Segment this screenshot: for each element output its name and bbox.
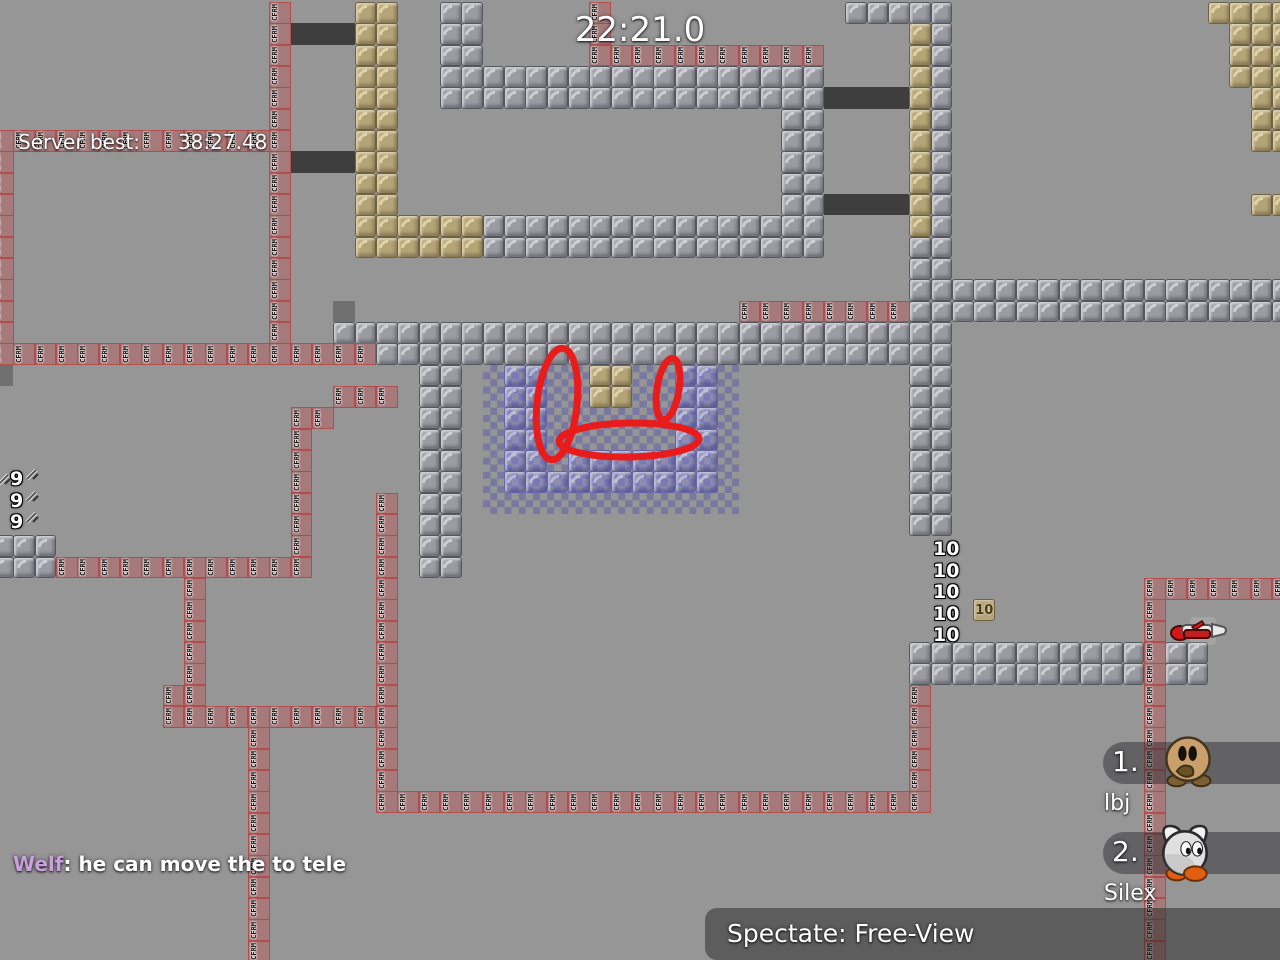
spectate-bar: Spectate: Free-View xyxy=(705,908,1280,960)
grenade-launcher-pickup xyxy=(1168,617,1232,647)
game-viewport: CFRMCFRMCFRMCFRMCFRMCFRMCFRMCFRMCFRMCFRM… xyxy=(0,0,1280,960)
scoreboard-name-1: lbj xyxy=(1104,791,1130,816)
chat-text: he can move the to tele xyxy=(78,852,346,876)
chat-separator: : xyxy=(63,852,78,876)
server-best-label: Server best: xyxy=(18,130,140,154)
server-best-value: 38:27.48 xyxy=(178,130,267,154)
scoreboard-name-2: Silex xyxy=(1104,881,1156,906)
hud-layer: 22:21.0 Server best:38:27.48 Welf: he ca… xyxy=(0,0,1280,960)
tee-avatar-lbj xyxy=(1158,731,1218,791)
server-best: Server best:38:27.48 xyxy=(18,130,267,154)
scoreboard-rank-2: 2. xyxy=(1112,835,1139,868)
race-timer: 22:21.0 xyxy=(0,10,1280,50)
scoreboard-rank-1: 1. xyxy=(1112,745,1139,778)
chat-message: Welf: he can move the to tele xyxy=(13,852,346,876)
tee-avatar-silex xyxy=(1152,820,1218,886)
spectate-label: Spectate: Free-View xyxy=(727,919,974,948)
chat-author: Welf xyxy=(13,852,63,876)
